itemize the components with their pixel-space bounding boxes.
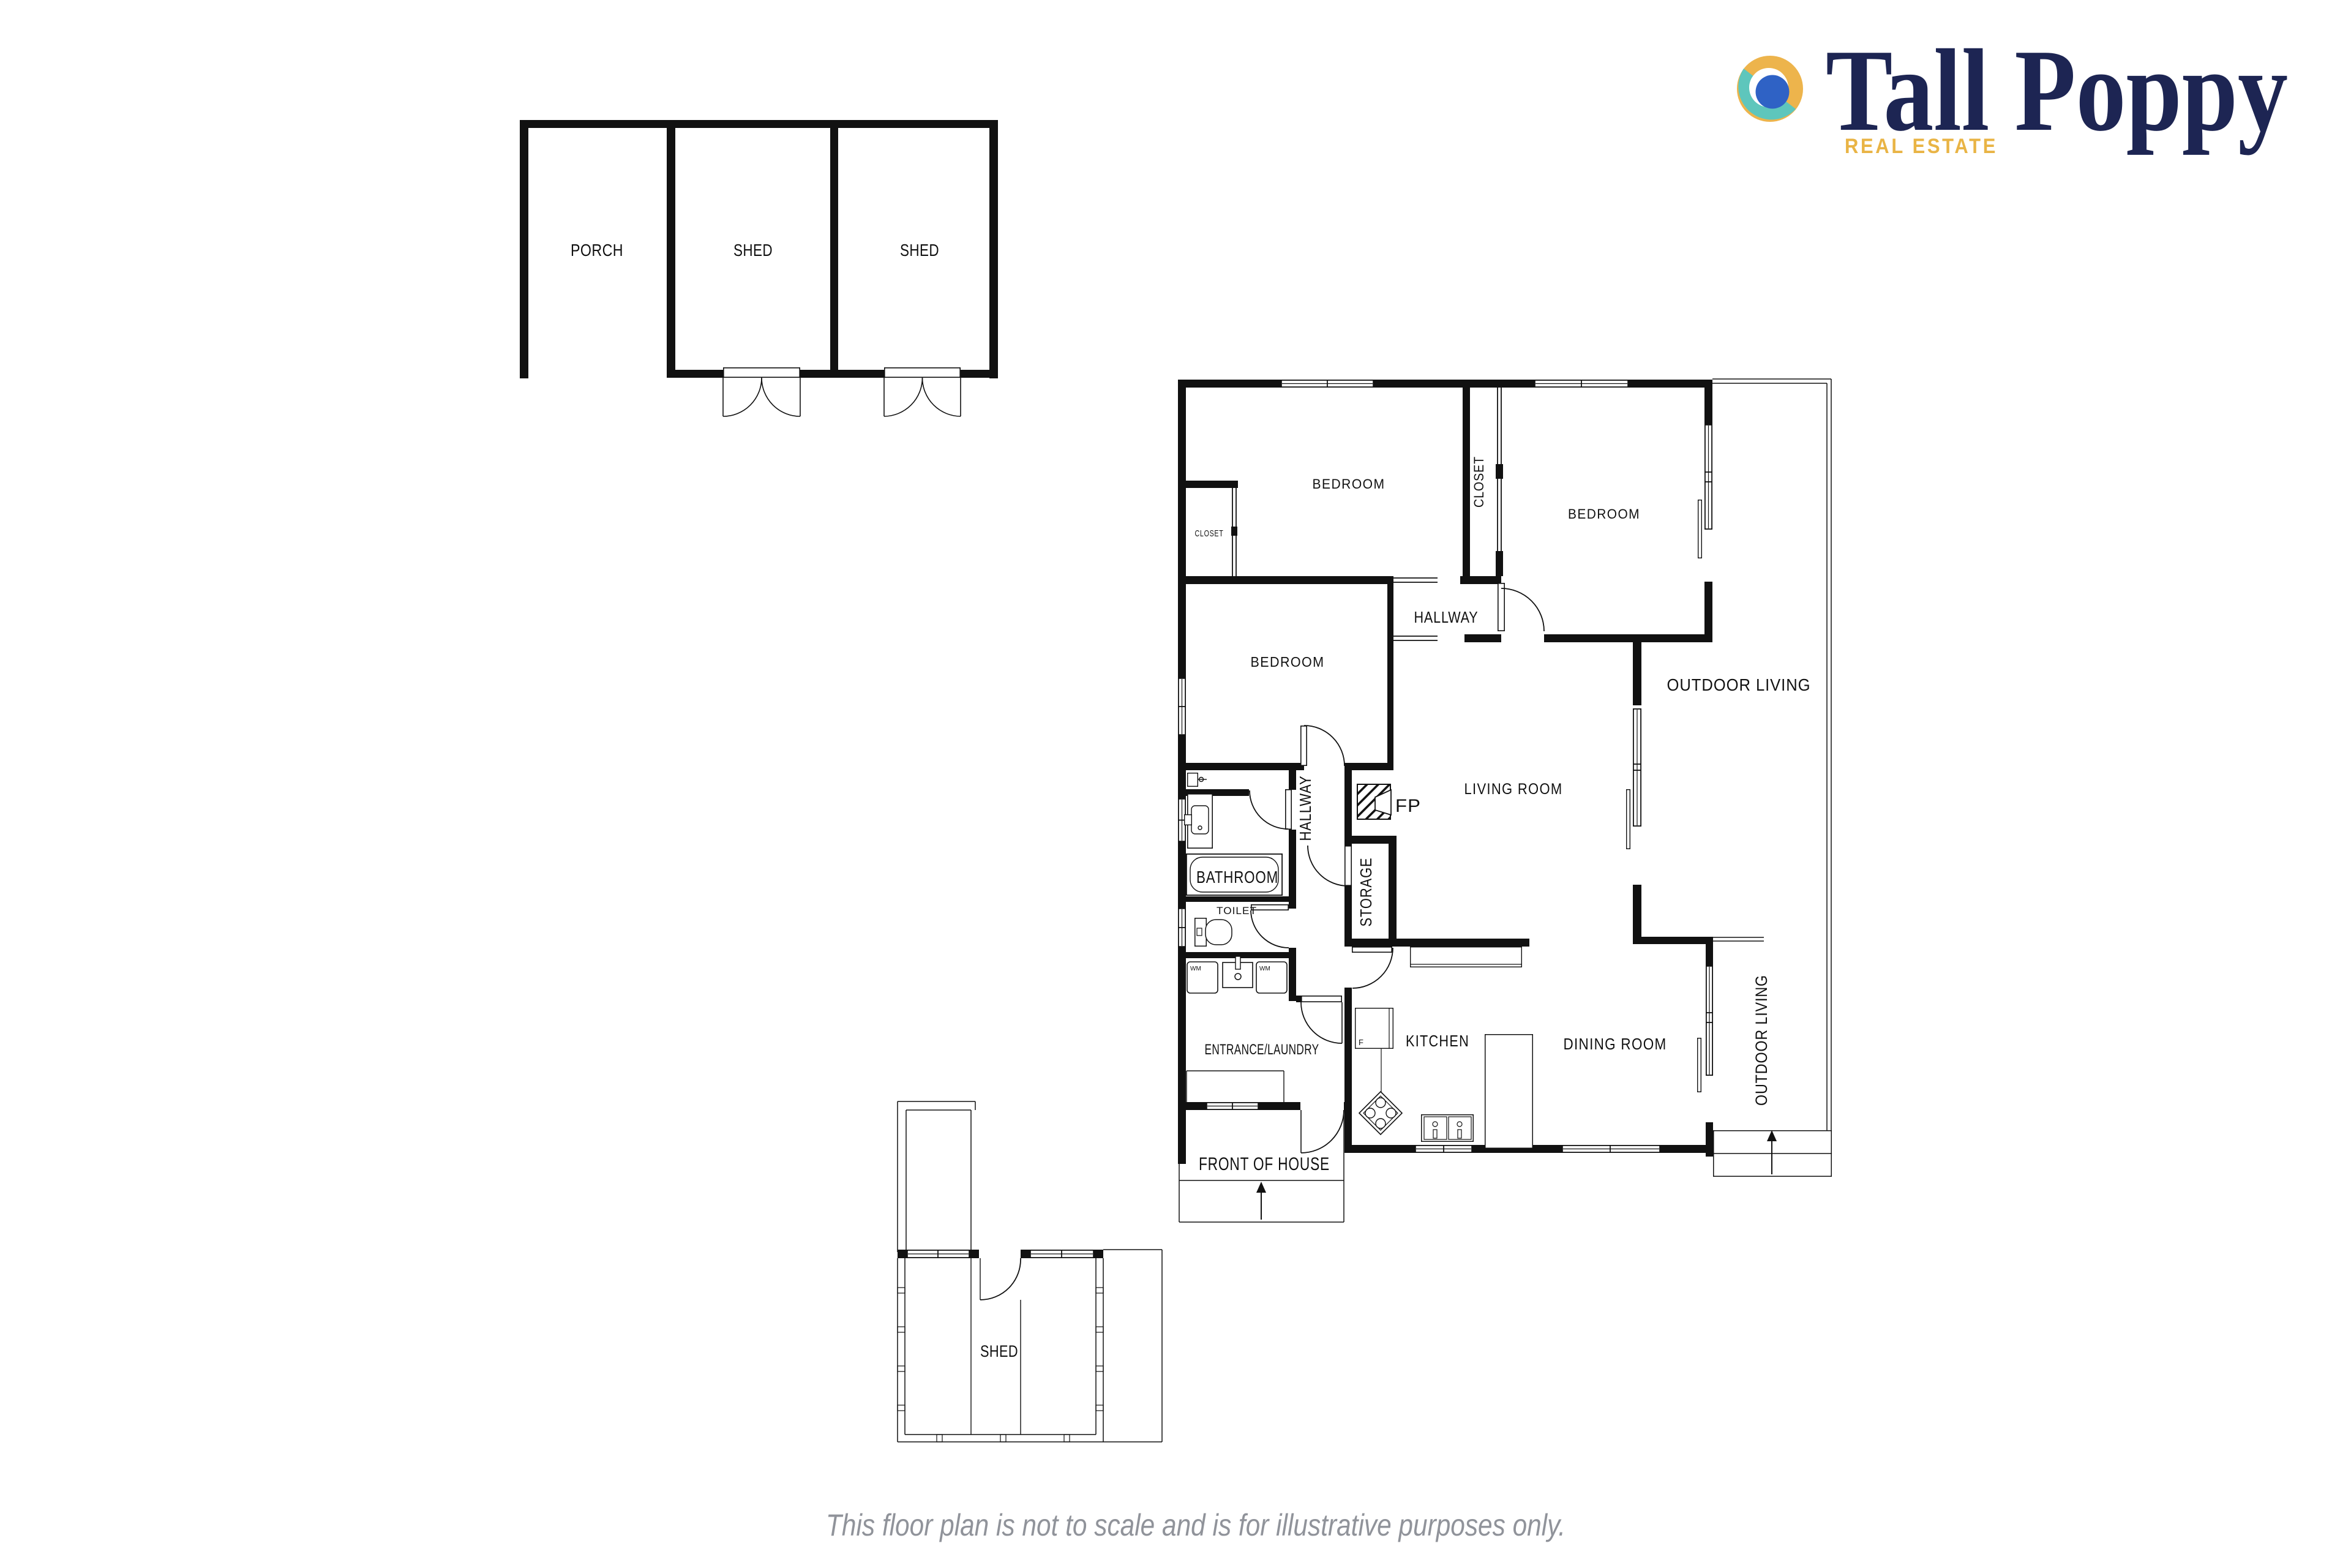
svg-text:CLOSET: CLOSET [1195, 528, 1224, 539]
svg-text:KITCHEN: KITCHEN [1406, 1032, 1469, 1050]
svg-text:This floor plan is not to scal: This floor plan is not to scale and is f… [826, 1508, 1565, 1542]
svg-text:DINING ROOM: DINING ROOM [1564, 1035, 1667, 1053]
svg-text:BEDROOM: BEDROOM [1568, 506, 1640, 522]
svg-text:TOILET: TOILET [1217, 905, 1257, 917]
svg-text:SHED: SHED [980, 1342, 1018, 1360]
svg-text:BEDROOM: BEDROOM [1313, 476, 1385, 492]
svg-text:REAL ESTATE: REAL ESTATE [1845, 135, 1998, 158]
svg-text:ENTRANCE/LAUNDRY: ENTRANCE/LAUNDRY [1205, 1041, 1319, 1058]
svg-text:CLOSET: CLOSET [1471, 456, 1487, 508]
svg-text:LIVING ROOM: LIVING ROOM [1464, 781, 1563, 798]
svg-text:F: F [1359, 1038, 1363, 1047]
svg-text:FP: FP [1395, 796, 1421, 816]
svg-text:FRONT OF HOUSE: FRONT OF HOUSE [1199, 1154, 1330, 1174]
svg-text:STORAGE: STORAGE [1357, 858, 1375, 927]
svg-text:BATHROOM: BATHROOM [1196, 868, 1278, 887]
svg-text:HALLWAY: HALLWAY [1414, 608, 1479, 626]
svg-text:PORCH: PORCH [571, 241, 623, 260]
svg-text:SHED: SHED [900, 241, 939, 260]
svg-text:BEDROOM: BEDROOM [1251, 654, 1325, 670]
svg-text:OUTDOOR LIVING: OUTDOOR LIVING [1667, 675, 1811, 694]
svg-text:WM: WM [1190, 966, 1201, 972]
svg-text:WM: WM [1259, 966, 1270, 972]
svg-text:SHED: SHED [733, 241, 773, 260]
svg-text:OUTDOOR LIVING: OUTDOOR LIVING [1752, 975, 1771, 1106]
svg-text:HALLWAY: HALLWAY [1296, 776, 1314, 841]
